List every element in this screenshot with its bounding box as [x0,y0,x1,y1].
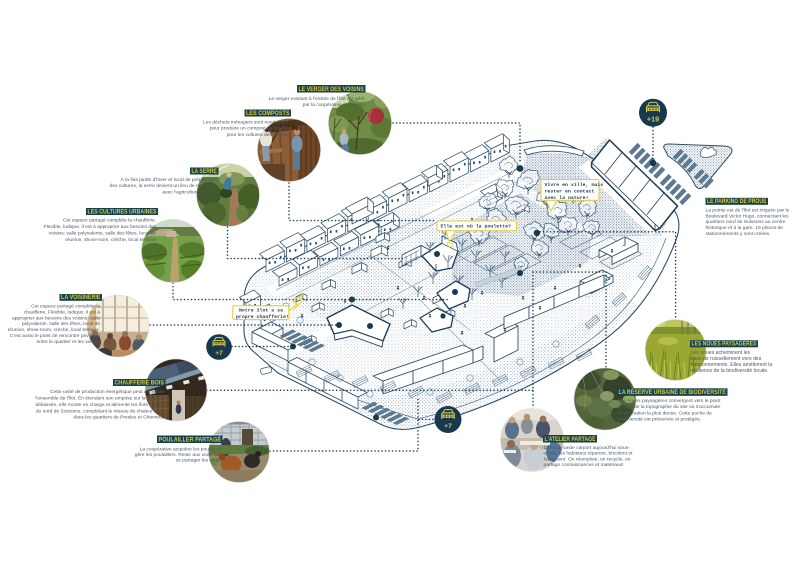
svg-text:LES COMPOSTS: LES COMPOSTS [246,111,290,117]
svg-text:+19: +19 [647,114,659,123]
svg-text:+7: +7 [215,350,223,357]
svg-text:CHAUFFERIE BOIS: CHAUFFERIE BOIS [114,380,164,386]
svg-text:LES NOUES PAYSAGÈRES: LES NOUES PAYSAGÈRES [692,340,757,348]
svg-text:Elle est où la poulette?: Elle est où la poulette? [441,224,512,230]
svg-text:POULAILLER PARTAGÉ: POULAILLER PARTAGÉ [159,435,222,443]
svg-text:L'ATELIER PARTAGÉ: L'ATELIER PARTAGÉ [545,435,596,443]
svg-text:+7: +7 [444,423,452,430]
svg-text:Dans un vaste carport aujourd': Dans un vaste carport aujourd'hui sous- … [544,445,634,468]
svg-text:LA SERRE: LA SERRE [191,169,217,175]
svg-text:LE VERGER DES VOISINS: LE VERGER DES VOISINS [298,87,364,93]
svg-text:LA VOISINERIE: LA VOISINERIE [61,295,101,301]
svg-text:LA RÉSERVE URBAINE DE BIODIVER: LA RÉSERVE URBAINE DE BIODIVERSITÉ [618,388,726,396]
svg-text:LES CULTURES URBAINES: LES CULTURES URBAINES [88,209,157,215]
svg-text:LE PARKING DE PROUE: LE PARKING DE PROUE [707,199,767,205]
